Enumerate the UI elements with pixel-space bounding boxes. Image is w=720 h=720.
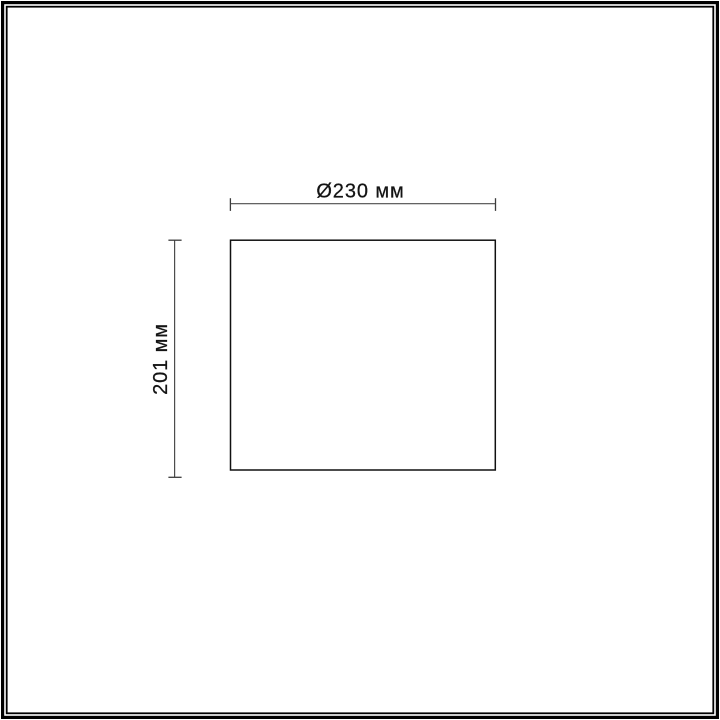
svg-text:Ø230 мм: Ø230 мм [316, 181, 404, 203]
svg-text:201 мм: 201 мм [150, 323, 172, 395]
